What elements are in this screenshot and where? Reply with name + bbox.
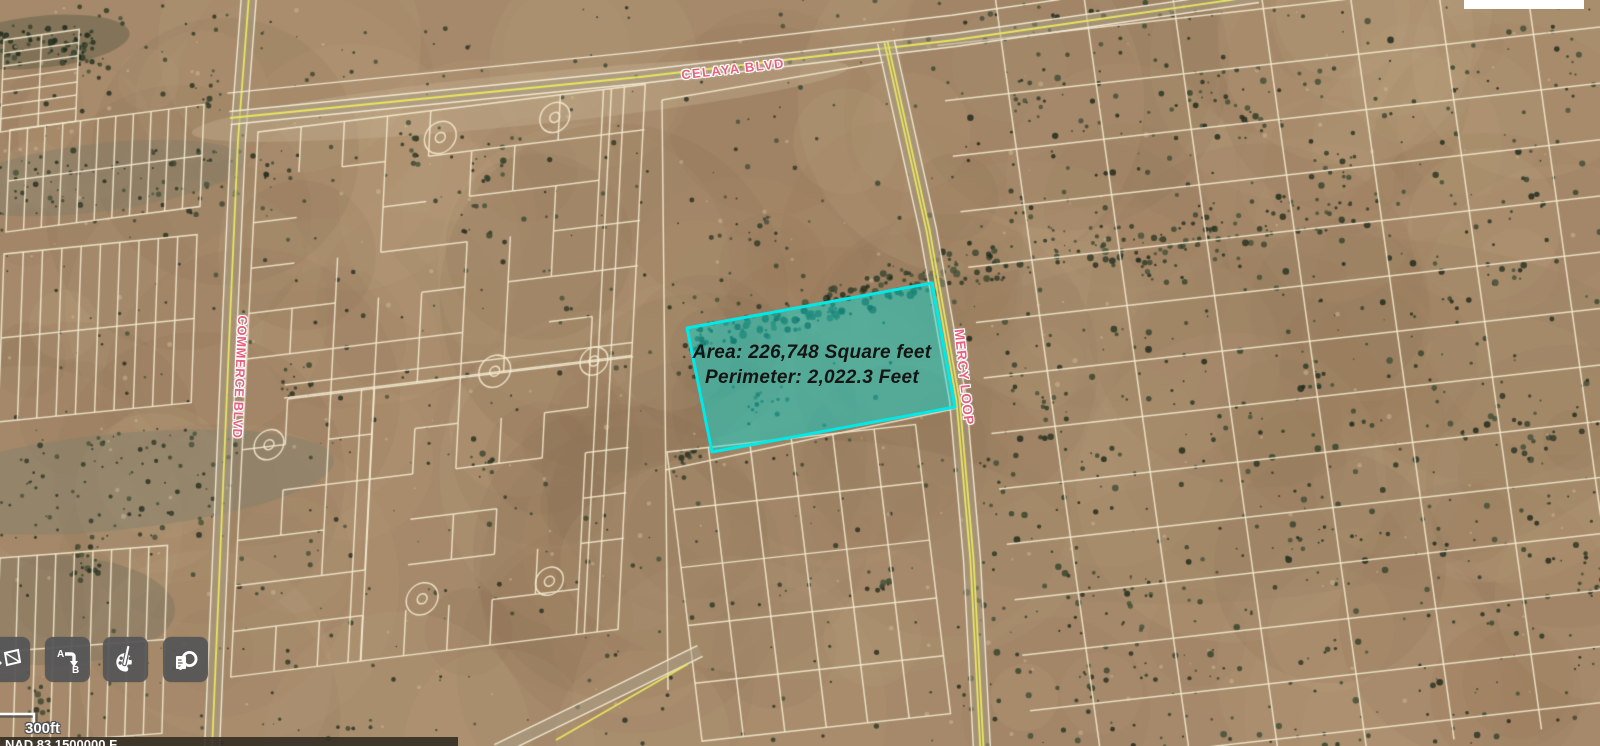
- search-documents-button[interactable]: [163, 637, 208, 682]
- coordinate-text: NAD 83 1500000 F: [5, 737, 117, 746]
- map-viewport: Area: 226,748 Square feet Perimeter: 2,0…: [0, 0, 1600, 746]
- drawing-tools-button[interactable]: [103, 637, 148, 682]
- a-to-b-icon: A B: [54, 646, 82, 674]
- coordinate-bar: NAD 83 1500000 F: [0, 737, 458, 746]
- palette-icon: [112, 646, 140, 674]
- route-start-letter: A: [57, 649, 64, 660]
- map-icon: [0, 646, 23, 674]
- document-search-icon: [172, 646, 200, 674]
- directions-button[interactable]: A B: [45, 637, 90, 682]
- basemap-button[interactable]: [0, 637, 30, 682]
- tile-blank-strip: [1464, 0, 1584, 9]
- route-end-letter: B: [72, 665, 79, 674]
